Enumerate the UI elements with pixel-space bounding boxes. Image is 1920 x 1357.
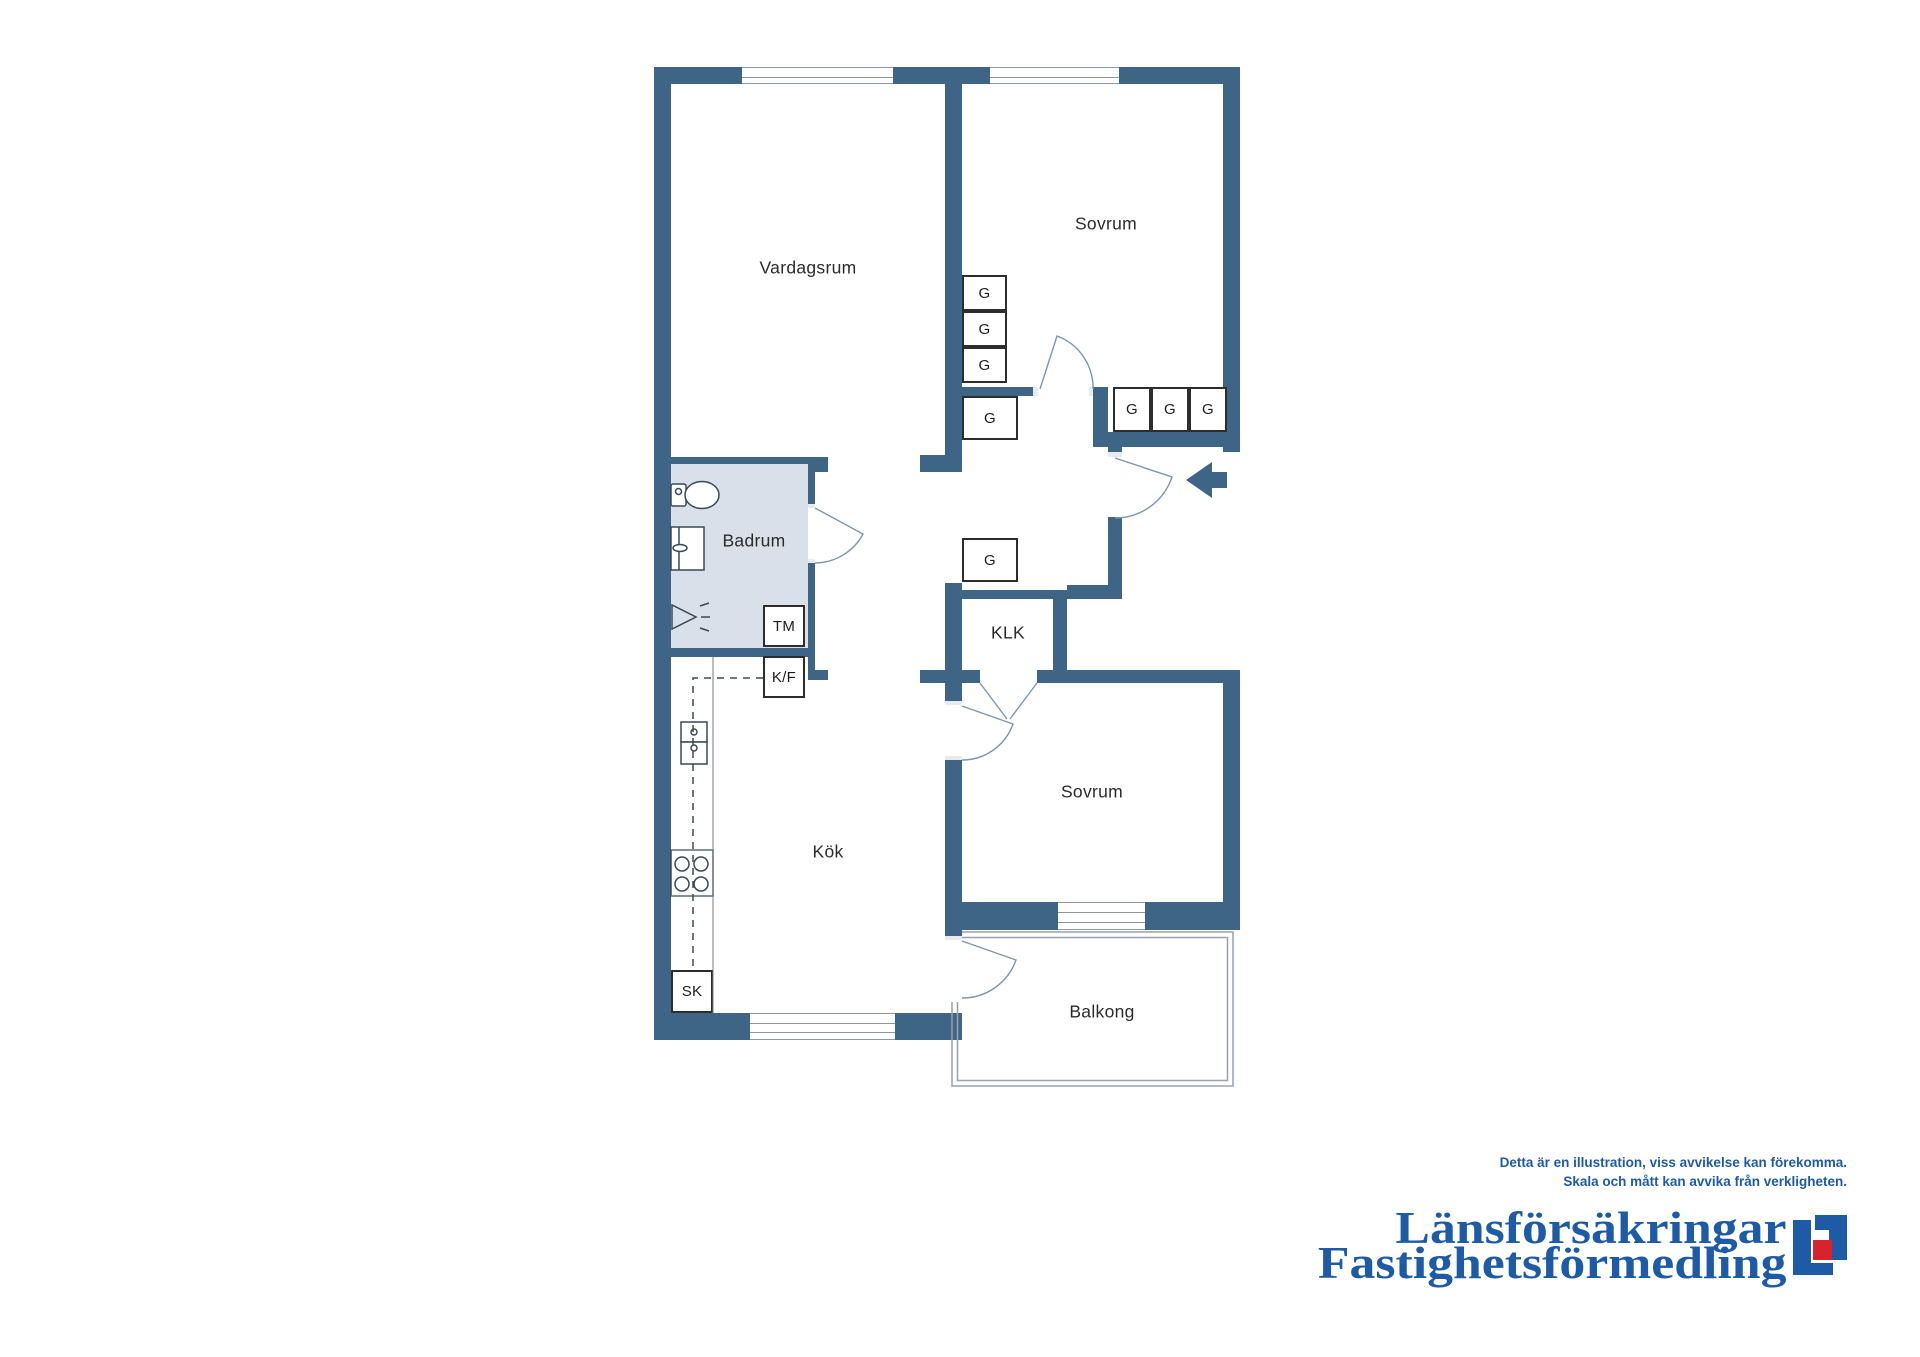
floor-plan-page: GGGGGGGGTMK/FSKVardagsrumSovrumBadrumKLK… [0, 0, 1920, 1357]
wall-segment [808, 670, 828, 680]
wall-segment [945, 583, 962, 670]
closet-box-label: K/F [772, 669, 796, 686]
closet-box-sk: SK [671, 970, 713, 1013]
window-pane-line [742, 77, 893, 78]
door-jamb-notch [1108, 452, 1122, 457]
closet-box-g: G [962, 538, 1018, 582]
closet-box-g: G [1113, 387, 1151, 432]
closet-box-label: G [984, 552, 996, 569]
wall-segment [654, 1013, 750, 1040]
closet-box-kf: K/F [763, 656, 805, 698]
closet-box-label: G [1164, 401, 1176, 418]
closet-box-label: TM [773, 618, 795, 635]
closet-box-label: G [979, 357, 991, 374]
door-jamb-notch [945, 936, 962, 940]
closet-box-g: G [1151, 387, 1189, 432]
room-label-kk-5: Kök [812, 842, 843, 863]
closet-box-label: SK [682, 983, 703, 1000]
window [750, 1013, 895, 1040]
wall-segment [945, 84, 962, 472]
door-jamb-notch [945, 701, 962, 705]
wall-segment [920, 455, 962, 472]
wall-segment [654, 457, 815, 464]
wall-segment [1037, 670, 1240, 683]
door-jamb-notch [808, 504, 815, 508]
wall-segment [945, 760, 962, 902]
wall-segment [945, 902, 1058, 930]
window-pane-line [1058, 922, 1145, 923]
window [990, 67, 1119, 84]
wall-segment [1067, 585, 1122, 599]
wall-segment [1093, 432, 1240, 447]
window-pane-line [750, 1032, 895, 1033]
closet-box-g: G [962, 275, 1007, 311]
window [742, 67, 893, 84]
disclaimer-text: Detta är en illustration, viss avvikelse… [1500, 1153, 1847, 1191]
wall-segment [1108, 517, 1122, 585]
wall-segment [962, 670, 980, 683]
wall-segment [1119, 67, 1240, 84]
room-label-balkong-6: Balkong [1069, 1002, 1134, 1023]
lf-logo-foot-bar [1793, 1263, 1833, 1275]
door-jamb-notch [945, 756, 962, 760]
room-label-sovrum-1: Sovrum [1075, 214, 1137, 235]
brand-wordmark-line-2: Fastighetsförmedling [1317, 1246, 1786, 1281]
closet-box-g: G [1189, 387, 1227, 432]
closet-box-g: G [962, 347, 1007, 383]
wall-segment [1053, 598, 1067, 670]
room-label-sovrum-4: Sovrum [1061, 782, 1123, 803]
wall-segment [1223, 670, 1240, 930]
wall-segment [945, 590, 1067, 599]
closet-box-label: G [1202, 401, 1214, 418]
window [1058, 902, 1145, 930]
wall-segment [654, 67, 671, 1040]
closet-box-label: G [1126, 401, 1138, 418]
lf-logo-icon [1792, 1212, 1856, 1284]
closet-box-tm: TM [763, 605, 805, 647]
window-pane-line [750, 1023, 895, 1024]
door-jamb-notch [808, 559, 815, 563]
disclaimer-line-2: Skala och mått kan avvika från verklighe… [1500, 1172, 1847, 1191]
window-pane-line [1058, 912, 1145, 913]
wall-segment [1145, 902, 1240, 930]
wall-segment [893, 67, 990, 84]
brand-wordmark: Länsförsäkringar Fastighetsförmedling [1317, 1211, 1786, 1281]
closet-box-label: G [984, 410, 996, 427]
door-jamb-notch [1033, 387, 1038, 396]
lf-logo-red-square [1813, 1240, 1832, 1260]
closet-box-label: G [979, 285, 991, 302]
wall-segment [808, 464, 815, 508]
closet-box-label: G [979, 321, 991, 338]
room-label-badrum-2: Badrum [722, 531, 785, 552]
room-label-vardagsrum-0: Vardagsrum [759, 258, 856, 279]
wall-segment [895, 1013, 962, 1040]
wall-segment [808, 563, 815, 680]
disclaimer-line-1: Detta är en illustration, viss avvikelse… [1500, 1153, 1847, 1172]
closet-box-g: G [962, 311, 1007, 347]
closet-box-g: G [962, 396, 1018, 440]
wall-segment [962, 387, 1038, 396]
wall-segment [920, 670, 962, 683]
window-pane-line [990, 77, 1119, 78]
room-label-klk-3: KLK [991, 623, 1025, 644]
door-jamb-notch [1089, 387, 1093, 396]
